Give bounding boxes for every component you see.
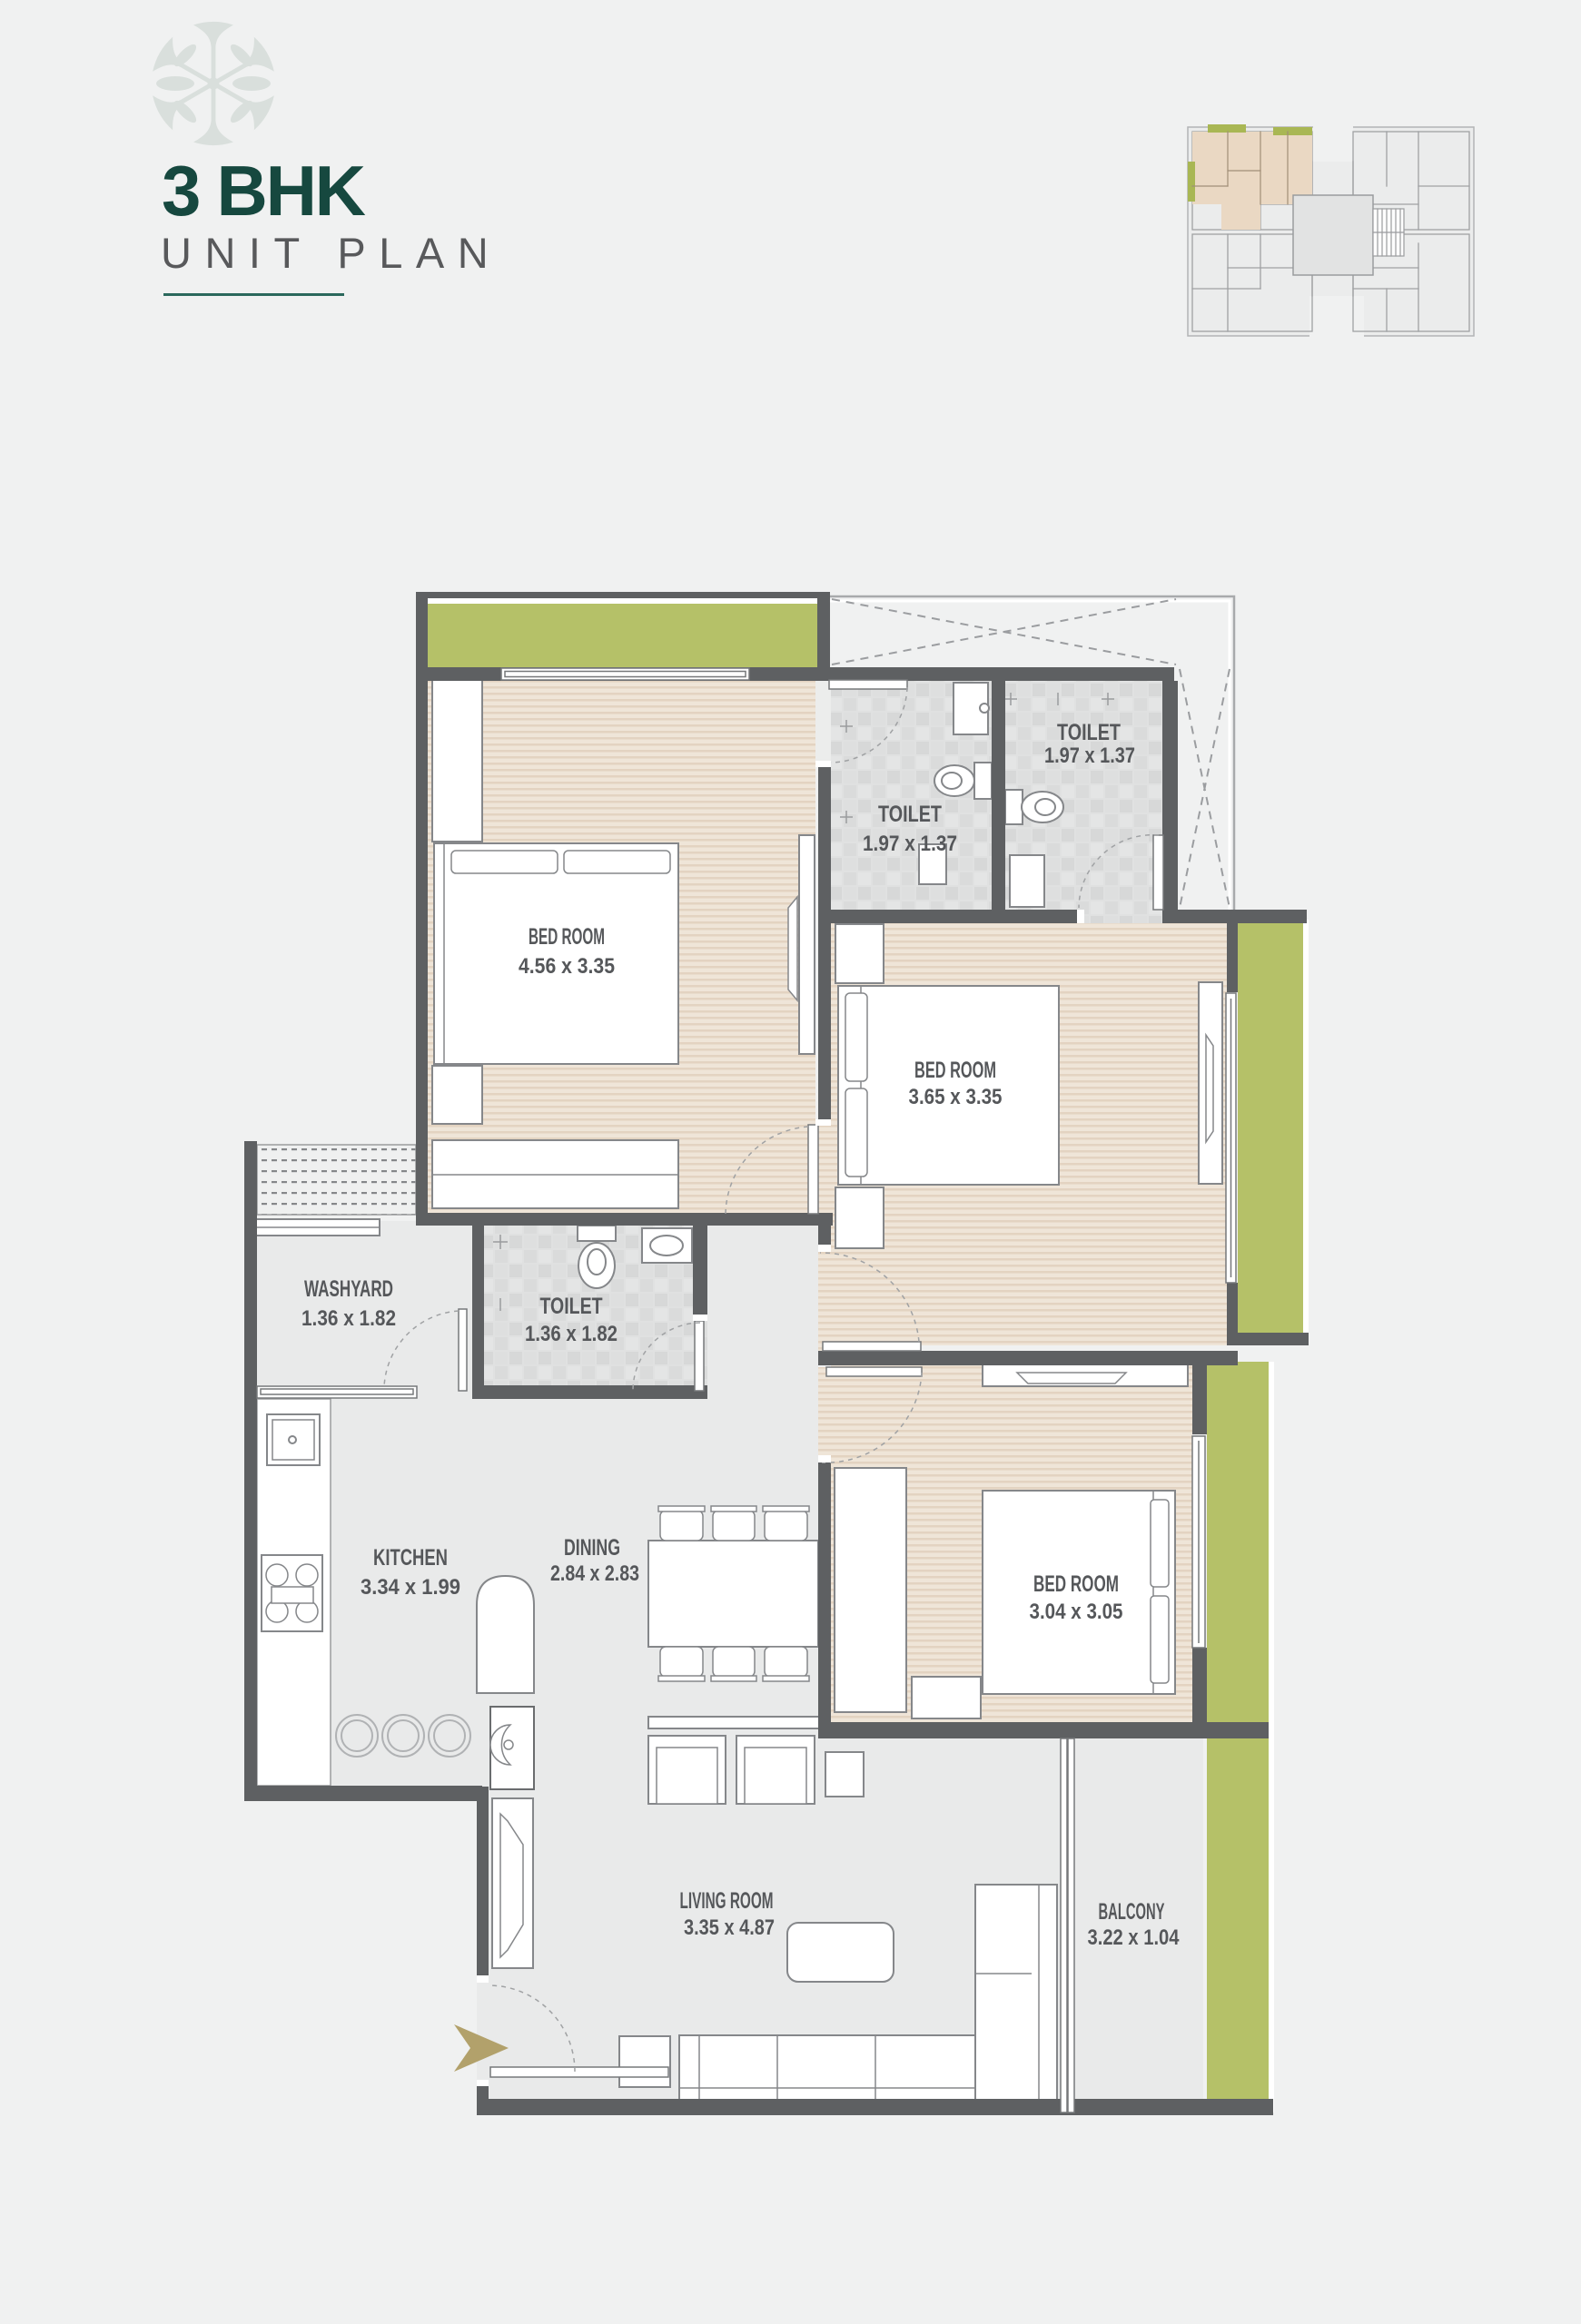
svg-text:1.97 x 1.37: 1.97 x 1.37 (863, 832, 957, 856)
svg-text:LIVING ROOM: LIVING ROOM (680, 1888, 774, 1914)
svg-text:UNIT PLAN: UNIT PLAN (161, 229, 501, 277)
svg-text:1.36 x 1.82: 1.36 x 1.82 (525, 1322, 618, 1346)
svg-text:3 BHK: 3 BHK (162, 151, 366, 231)
svg-text:WASHYARD: WASHYARD (304, 1276, 393, 1302)
svg-text:3.04 x 3.05: 3.04 x 3.05 (1030, 1600, 1123, 1624)
svg-text:DINING: DINING (564, 1535, 620, 1561)
svg-text:1.36 x 1.82: 1.36 x 1.82 (301, 1306, 396, 1331)
svg-text:3.22 x 1.04: 3.22 x 1.04 (1088, 1925, 1181, 1950)
svg-text:3.65 x 3.35: 3.65 x 3.35 (909, 1085, 1003, 1109)
svg-text:KITCHEN: KITCHEN (373, 1545, 448, 1571)
svg-text:TOILET: TOILET (878, 802, 942, 827)
svg-text:TOILET: TOILET (1057, 720, 1121, 745)
svg-text:BED ROOM: BED ROOM (914, 1058, 996, 1083)
svg-text:BALCONY: BALCONY (1099, 1899, 1165, 1925)
svg-text:4.56 x 3.35: 4.56 x 3.35 (519, 954, 615, 979)
svg-text:TOILET: TOILET (540, 1294, 603, 1319)
svg-text:2.84 x 2.83: 2.84 x 2.83 (550, 1561, 639, 1586)
svg-text:3.35 x 4.87: 3.35 x 4.87 (684, 1915, 775, 1940)
svg-text:3.34 x 1.99: 3.34 x 1.99 (361, 1575, 460, 1600)
svg-text:BED ROOM: BED ROOM (529, 924, 605, 950)
svg-text:BED ROOM: BED ROOM (1033, 1571, 1119, 1597)
svg-text:1.97 x 1.37: 1.97 x 1.37 (1044, 743, 1135, 768)
